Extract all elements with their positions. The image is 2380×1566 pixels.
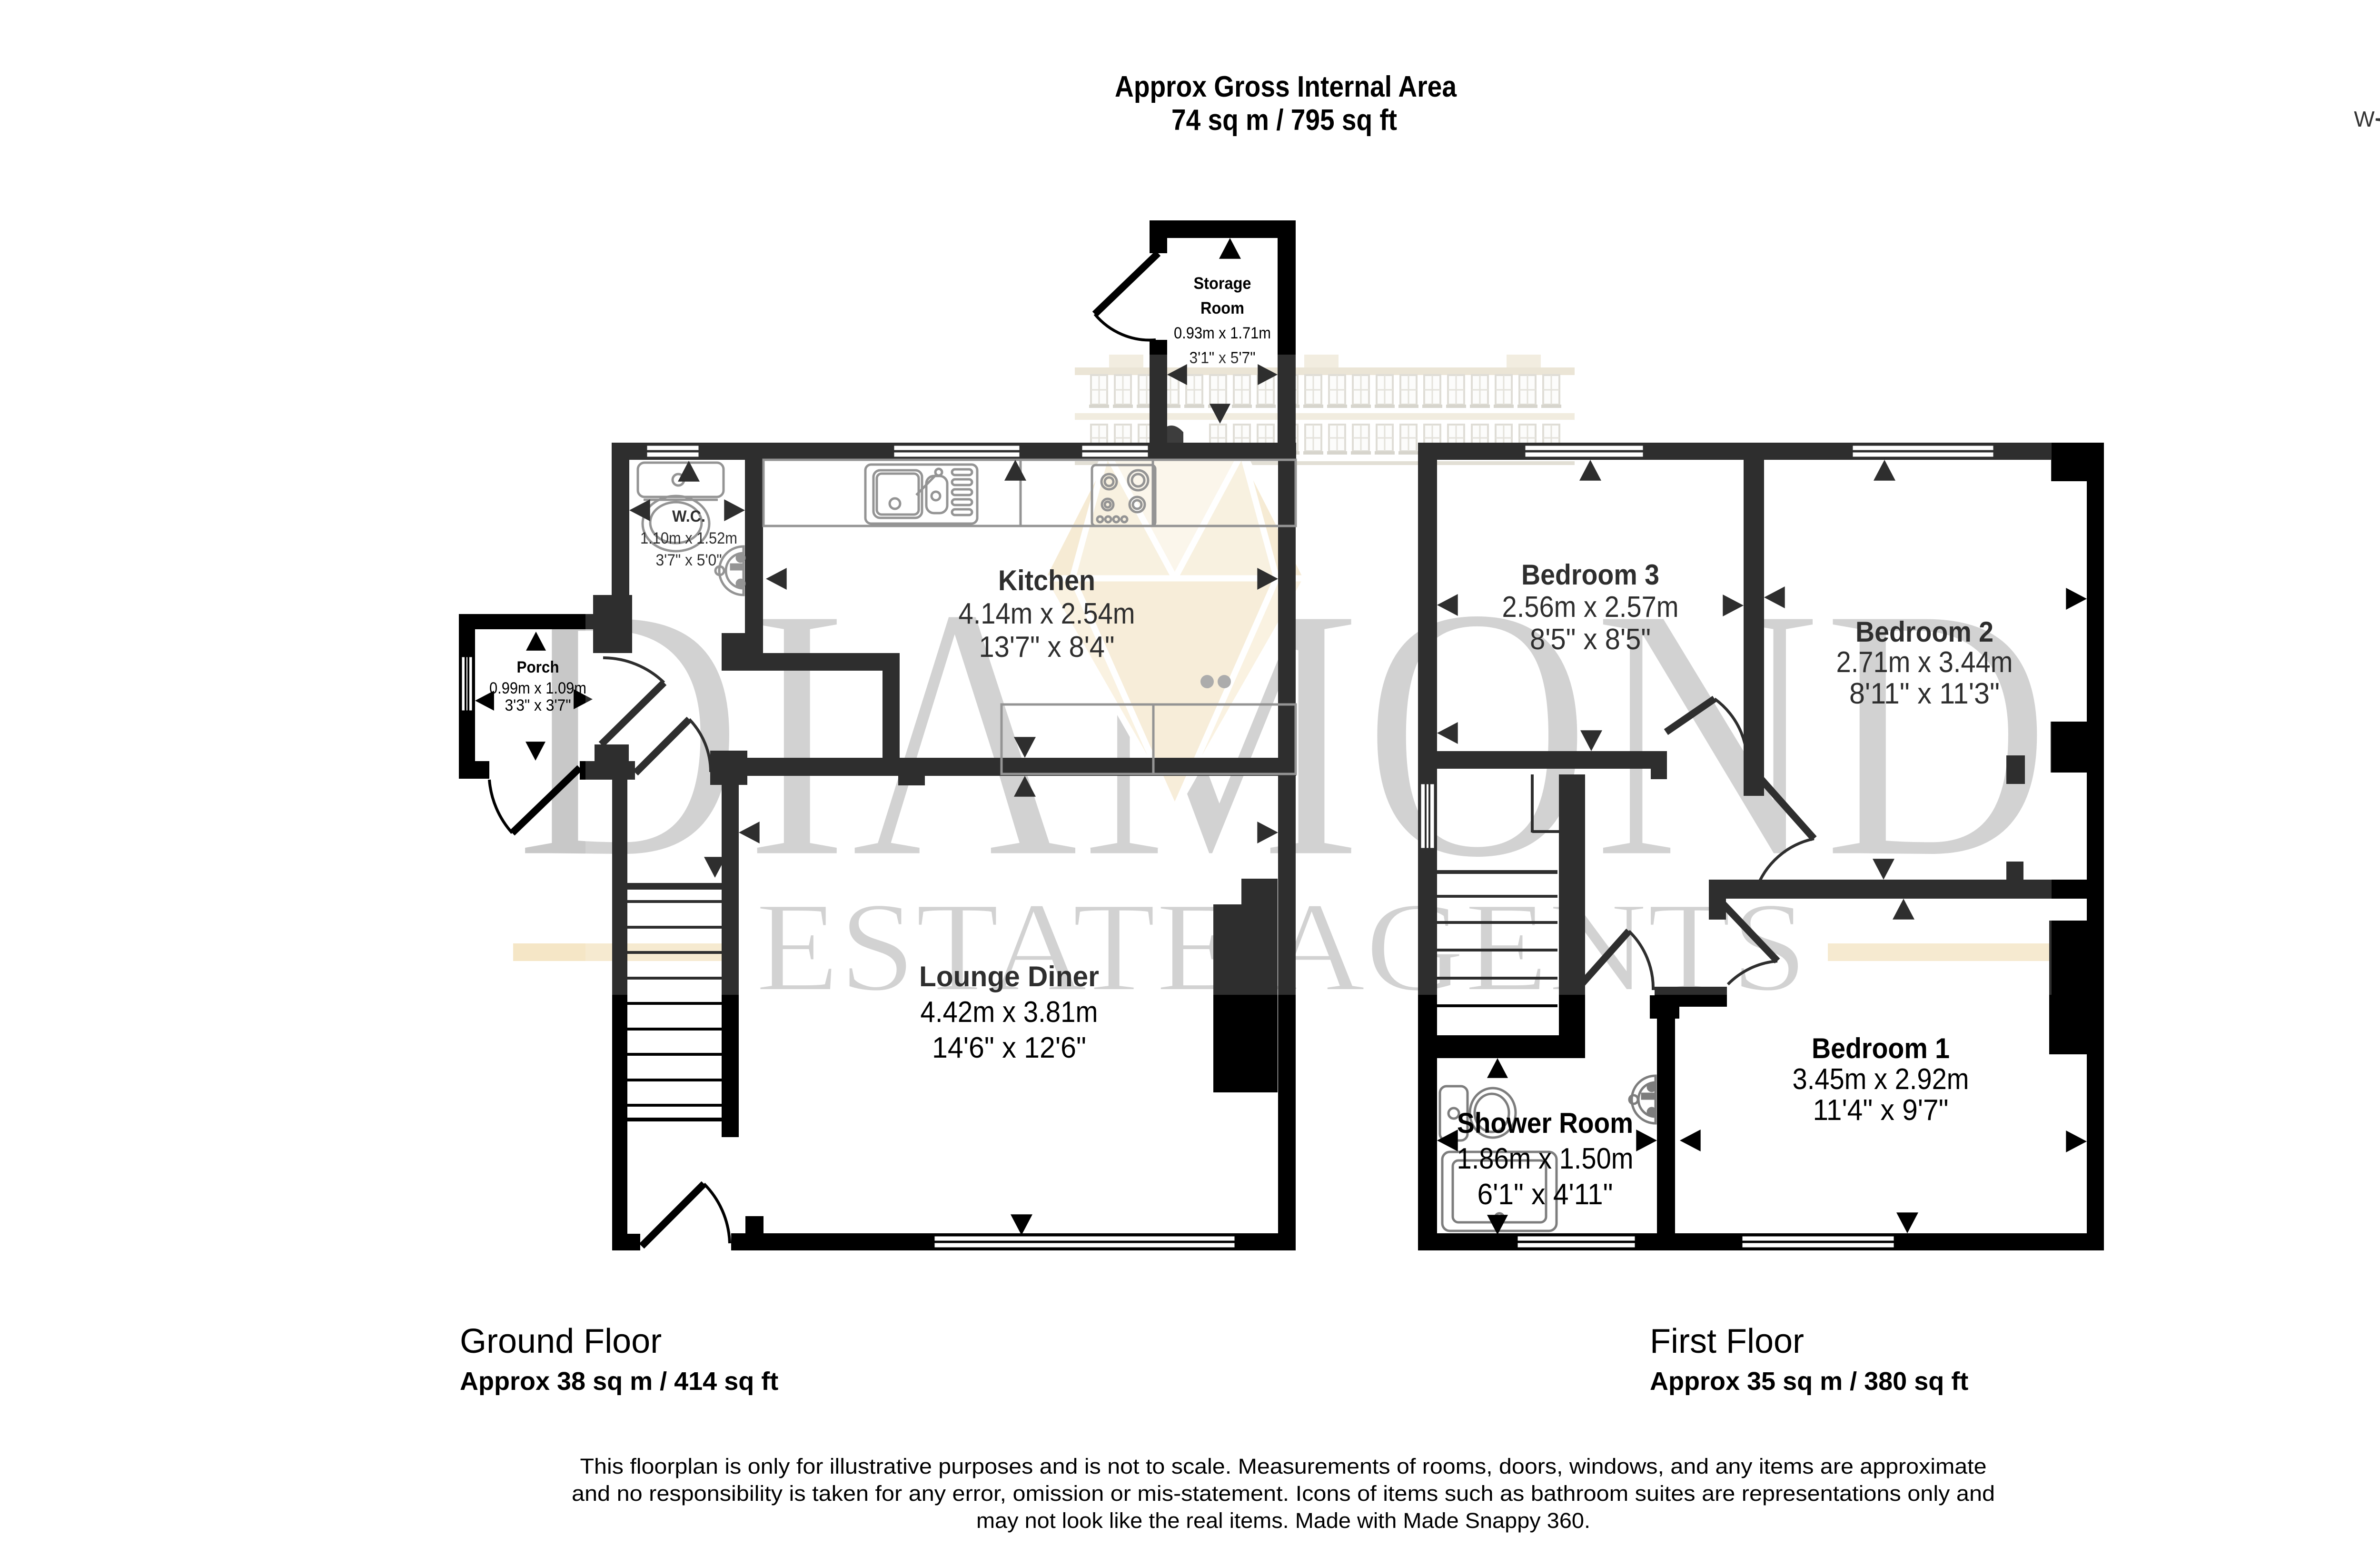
svg-text:W: W	[2354, 107, 2375, 131]
svg-text:74 sq m / 795 sq ft: 74 sq m / 795 sq ft	[1171, 104, 1397, 137]
svg-text:0.93m x 1.71m: 0.93m x 1.71m	[1174, 324, 1271, 342]
svg-text:This floorplan is only for ill: This floorplan is only for illustrative …	[580, 1454, 1987, 1478]
svg-text:and no responsibility is taken: and no responsibility is taken for any e…	[572, 1481, 1995, 1506]
svg-text:Bedroom 1: Bedroom 1	[1812, 1032, 1950, 1064]
svg-text:Porch: Porch	[517, 658, 559, 676]
svg-text:14'6" x 12'6": 14'6" x 12'6"	[932, 1031, 1086, 1064]
svg-text:may not look like the real ite: may not look like the real items. Made w…	[976, 1508, 1590, 1533]
svg-text:Storage: Storage	[1194, 274, 1251, 293]
svg-text:Shower Room: Shower Room	[1457, 1107, 1633, 1139]
svg-text:Ground Floor: Ground Floor	[460, 1322, 662, 1360]
svg-text:First Floor: First Floor	[1650, 1322, 1804, 1360]
svg-text:3.45m x 2.92m: 3.45m x 2.92m	[1793, 1063, 1969, 1096]
svg-text:6'1" x 4'11": 6'1" x 4'11"	[1478, 1178, 1613, 1211]
svg-text:0.99m x 1.09m: 0.99m x 1.09m	[489, 679, 586, 697]
svg-text:Approx 35 sq m / 380 sq ft: Approx 35 sq m / 380 sq ft	[1650, 1367, 1968, 1396]
svg-text:4.42m x 3.81m: 4.42m x 3.81m	[921, 996, 1098, 1029]
svg-text:Approx 38 sq m / 414 sq ft: Approx 38 sq m / 414 sq ft	[460, 1367, 778, 1396]
svg-text:Approx Gross Internal Area: Approx Gross Internal Area	[1115, 70, 1457, 103]
svg-text:Room: Room	[1200, 299, 1244, 317]
svg-text:11'4" x 9'7": 11'4" x 9'7"	[1813, 1094, 1949, 1127]
svg-text:3'3" x 3'7": 3'3" x 3'7"	[505, 696, 571, 714]
svg-text:1.86m x 1.50m: 1.86m x 1.50m	[1457, 1142, 1634, 1175]
